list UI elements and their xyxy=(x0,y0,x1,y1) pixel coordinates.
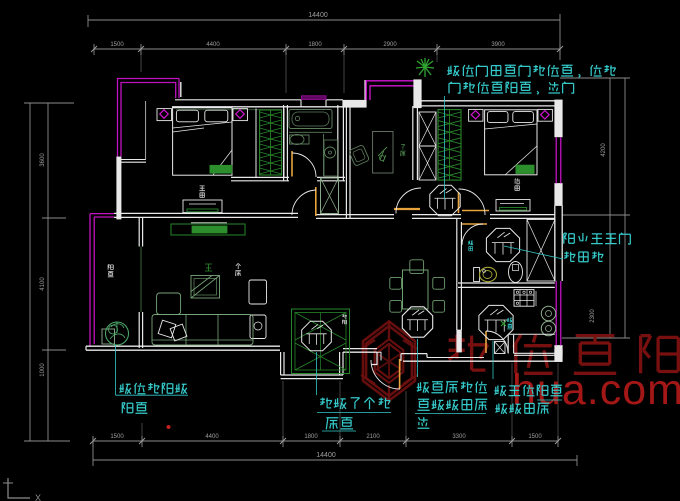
svg-text:4100: 4100 xyxy=(40,277,46,291)
svg-text:2100: 2100 xyxy=(366,434,380,440)
svg-text:3600: 3600 xyxy=(40,153,46,167)
svg-text:14400: 14400 xyxy=(316,452,336,459)
svg-text:1000: 1000 xyxy=(40,363,46,377)
svg-text:4400: 4400 xyxy=(206,42,220,48)
svg-text:3300: 3300 xyxy=(452,434,466,440)
svg-text:1800: 1800 xyxy=(304,434,318,440)
svg-text:4200: 4200 xyxy=(601,143,607,157)
svg-text:3900: 3900 xyxy=(491,42,505,48)
svg-text:1800: 1800 xyxy=(308,42,322,48)
svg-text:1500: 1500 xyxy=(528,434,542,440)
svg-text:X: X xyxy=(35,493,41,501)
svg-text:2300: 2300 xyxy=(590,309,596,323)
svg-text:14400: 14400 xyxy=(308,12,328,19)
svg-text:1500: 1500 xyxy=(110,434,124,440)
svg-text:2900: 2900 xyxy=(383,42,397,48)
svg-text:1500: 1500 xyxy=(110,42,124,48)
svg-text:4400: 4400 xyxy=(205,434,219,440)
